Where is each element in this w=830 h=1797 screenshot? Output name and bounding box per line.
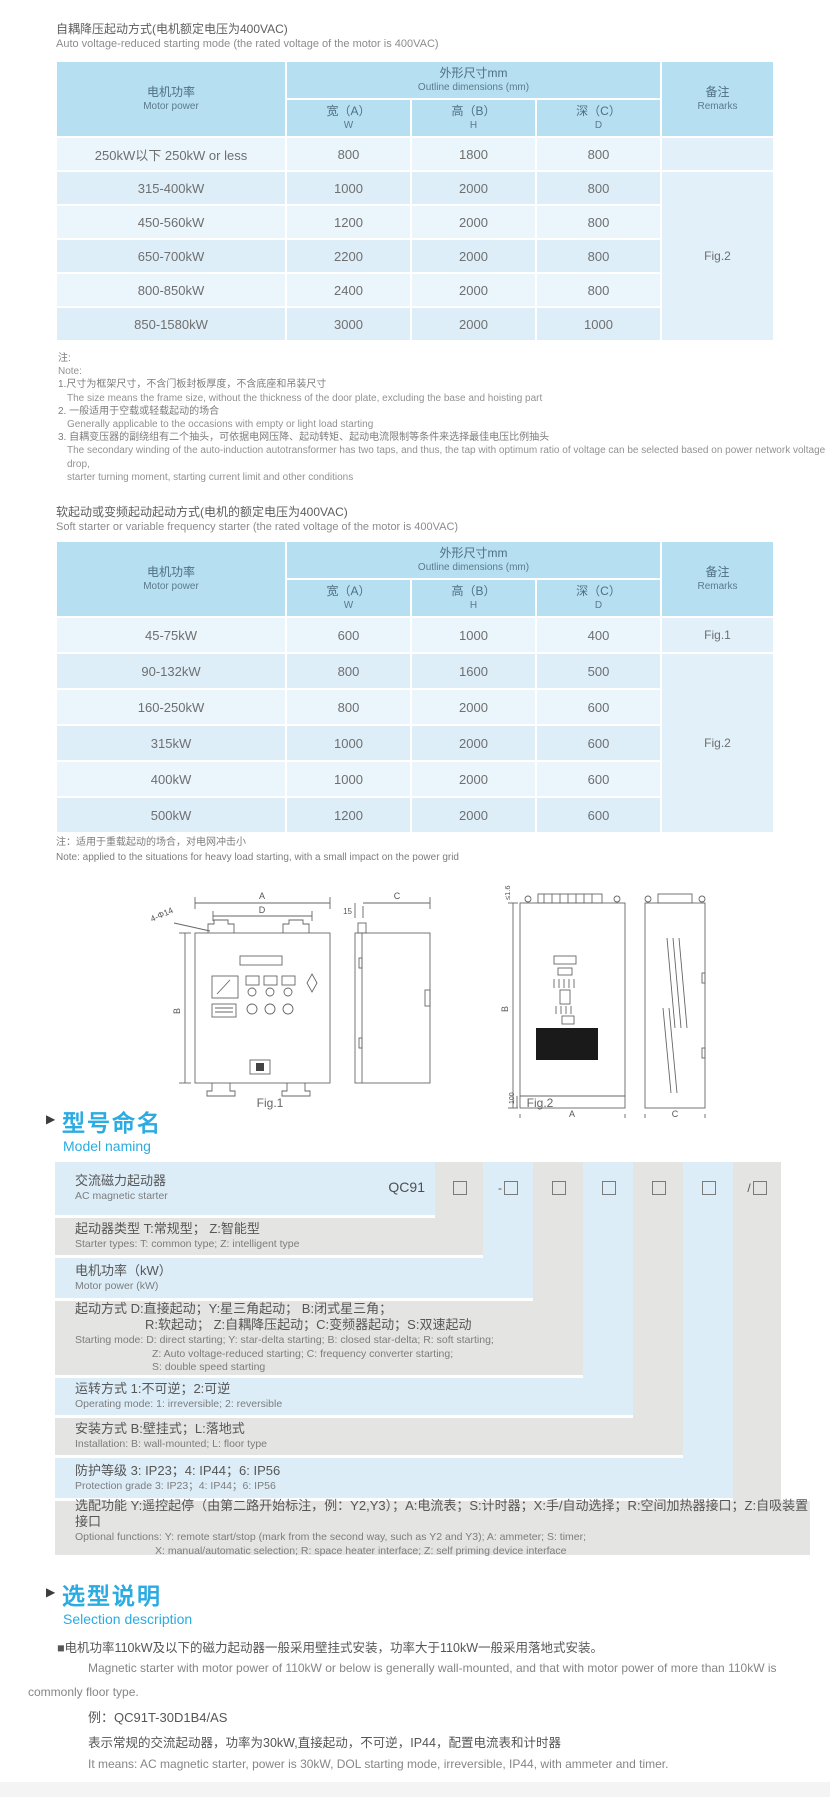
code-box-3 [533,1178,583,1198]
col-depth: 深（C）D [536,99,661,137]
cell-power: 450-560kW [56,205,286,239]
row-label-cn: 起动方式 D:直接起动；Y:星三角起动； B:闭式星三角； [55,1301,583,1317]
header-label: 高（B） [412,104,535,119]
cell-d: 800 [536,137,661,171]
fig1-drawing: A D 4-Φ14 B 15 [149,891,430,1096]
header-label-en: H [412,119,535,132]
col-motor-power: 电机功率Motor power [56,541,286,617]
cell-h: 1600 [411,653,536,689]
row-label-cn: 起动器类型 T:常规型； Z:智能型 [55,1221,483,1237]
cell-h: 2000 [411,797,536,833]
section2-title-cn: 软起动或变频起动起动方式(电机的额定电压为400VAC) [56,503,348,520]
col-height: 高（B）H [411,99,536,137]
cell-power: 315-400kW [56,171,286,205]
cell-w: 1000 [286,761,411,797]
dim-label-a: A [259,891,265,901]
cell-power: 45-75kW [56,617,286,653]
cell-remark-empty [661,137,774,171]
row-label-cn: 安装方式 B:壁挂式；L:落地式 [55,1421,683,1437]
header-label: 宽（A） [287,104,410,119]
row-label-en: S: double speed starting [55,1361,583,1375]
note-line: Generally applicable to the occasions wi… [58,418,830,431]
outline-drawings: A D 4-Φ14 B 15 [100,878,730,1118]
col-remarks: 备注Remarks [661,541,774,617]
soft-starter-table: 电机功率Motor power 外形尺寸mmOutline dimensions… [55,540,775,834]
cell-h: 2000 [411,689,536,725]
fig2-caption: Fig.2 [495,1096,585,1110]
selection-heading-en: Selection description [63,1611,192,1627]
row-label-en: Starting mode: D: direct starting; Y: st… [55,1334,583,1348]
dim-label-c2: C [672,1109,679,1118]
cell-h: 1800 [411,137,536,171]
table-header-row: 电机功率Motor power 外形尺寸mmOutline dimensions… [56,541,774,579]
header-label-en: Motor power [57,580,285,593]
selection-p1-en2: commonly floor type. [28,1685,139,1699]
code-box-icon [552,1181,566,1195]
table2-note-en: Note: applied to the situations for heav… [56,851,459,865]
note-line: 1.尺寸为框架尺寸，不含门板封板厚度，不含底座和吊装尺寸 [58,378,830,391]
row-label-en: Optional functions: Y: remote start/stop… [55,1531,810,1545]
dim-label-b: B [172,1008,182,1014]
header-label: 电机功率 [57,85,285,100]
code-box-2: - [483,1178,533,1198]
header-label-en: W [287,599,410,612]
note-line: The secondary winding of the auto-induct… [58,444,830,470]
table-header-row: 电机功率Motor power 外形尺寸mmOutline dimensions… [56,61,774,99]
header-label: 高（B） [412,584,535,599]
section-marker-icon: ▶ [46,1112,55,1126]
header-label: 外形尺寸mm [287,546,660,561]
model-prefix: QC91 [373,1179,425,1195]
model-row-motor-power: 电机功率（kW） Motor power (kW) [55,1258,533,1298]
cell-w: 600 [286,617,411,653]
note-line: Note: [58,365,830,378]
cell-d: 600 [536,797,661,833]
row-label-cn: 选配功能 Y:遥控起停（由第二路开始标注，例：Y2,Y3）；A:电流表；S:计时… [55,1498,810,1530]
header-label-en: Motor power [57,100,285,113]
code-box-icon [753,1181,767,1195]
cell-remark-fig2: Fig.2 [661,171,774,341]
code-box-icon [602,1181,616,1195]
selection-p1-cn: ■电机功率110kW及以下的磁力起动器一般采用壁挂式安装，功率大于110kW一般… [57,1637,603,1656]
cell-power: 250kW以下 250kW or less [56,137,286,171]
cell-h: 1000 [411,617,536,653]
cell-remark-fig2: Fig.2 [661,653,774,833]
row-label-en: Starter types: T: common type; Z: intell… [55,1238,483,1252]
cell-d: 600 [536,689,661,725]
cell-w: 2200 [286,239,411,273]
cell-h: 2000 [411,205,536,239]
row-label-cn: 防护等级 3: IP23；4: IP44；6: IP56 [55,1463,733,1479]
cell-power: 160-250kW [56,689,286,725]
code-box-icon [504,1181,518,1195]
code-strip-6 [683,1162,733,1498]
col-height: 高（B）H [411,579,536,617]
cell-d: 800 [536,205,661,239]
row-label-en: Protection grade 3: IP23；4: IP44；6: IP56 [55,1480,733,1494]
model-row-operating-mode: 运转方式 1:不可逆；2:可逆 Operating mode: 1: irrev… [55,1378,633,1415]
note-line: 3. 自耦变压器的副绕组有二个抽头，可依据电网压降、起动转矩、起动电流限制等条件… [58,431,830,444]
selection-example: 例：QC91T-30D1B4/AS [88,1707,227,1726]
header-label-en: Remarks [662,100,773,113]
code-strip-7 [733,1162,781,1555]
fig2-drawing: ≤1.6 B 100 A C [500,885,705,1118]
header-label: 深（C） [537,584,660,599]
header-label: 电机功率 [57,565,285,580]
cell-h: 2000 [411,307,536,341]
cell-d: 600 [536,725,661,761]
box-prefix: - [498,1181,502,1195]
col-width: 宽（A）W [286,99,411,137]
row-label-en: Motor power (kW) [55,1280,533,1294]
cell-w: 1000 [286,725,411,761]
header-label: 深（C） [537,104,660,119]
cell-power: 315kW [56,725,286,761]
dim-label-le16: ≤1.6 [503,885,512,900]
row-label-cn: 电机功率（kW） [55,1263,533,1279]
code-box-5 [633,1178,683,1198]
model-row-starter-type: 起动器类型 T:常规型； Z:智能型 Starter types: T: com… [55,1218,483,1255]
model-naming-heading-cn: 型号命名 [62,1104,162,1138]
model-naming-heading-en: Model naming [63,1138,151,1154]
row-label-en: Installation: B: wall-mounted; L: floor … [55,1438,683,1452]
note-line: 2. 一般适用于空载或轻载起动的场合 [58,405,830,418]
cell-h: 2000 [411,171,536,205]
box-prefix: / [747,1181,750,1195]
selection-p2-cn: 表示常规的交流起动器，功率为30kW,直接起动，不可逆，IP44，配置电流表和计… [88,1732,561,1751]
code-box-icon [453,1181,467,1195]
cell-d: 400 [536,617,661,653]
code-box-7: / [733,1178,781,1198]
cell-remark-fig1: Fig.1 [661,617,774,653]
dim-label-holes: 4-Φ14 [149,905,175,924]
cell-h: 2000 [411,725,536,761]
table1-notes: 注: Note: 1.尺寸为框架尺寸，不含门板封板厚度，不含底座和吊装尺寸 Th… [58,352,830,484]
table-row: 315-400kW10002000800Fig.2 [56,171,774,205]
header-label-en: Outline dimensions (mm) [287,81,660,94]
model-naming-table: 交流磁力起动器 AC magnetic starter 起动器类型 T:常规型；… [55,1162,810,1555]
header-label: 外形尺寸mm [287,66,660,81]
table-row: 90-132kW8001600500Fig.2 [56,653,774,689]
section1-title-cn: 自耦降压起动方式(电机额定电压为400VAC) [56,20,288,37]
selection-heading-cn: 选型说明 [62,1577,162,1611]
col-depth: 深（C）D [536,579,661,617]
col-motor-power: 电机功率Motor power [56,61,286,137]
cell-d: 800 [536,273,661,307]
cell-w: 1200 [286,797,411,833]
row-label-en: Z: Auto voltage-reduced starting; C: fre… [55,1348,583,1362]
model-row-starting-mode: 起动方式 D:直接起动；Y:星三角起动； B:闭式星三角； R:软起动； Z:自… [55,1301,583,1375]
cell-power: 800-850kW [56,273,286,307]
cell-w: 800 [286,653,411,689]
dim-label-d: D [259,905,266,915]
header-label-en: D [537,119,660,132]
cell-w: 3000 [286,307,411,341]
cell-w: 800 [286,689,411,725]
section-marker-icon: ▶ [46,1585,55,1599]
code-strip-5 [633,1162,683,1455]
cell-power: 650-700kW [56,239,286,273]
row-label-en: Operating mode: 1: irreversible; 2: reve… [55,1398,633,1412]
cell-d: 800 [536,171,661,205]
selection-p2-en: It means: AC magnetic starter, power is … [88,1757,668,1771]
header-label-en: H [412,599,535,612]
dim-label-a2: A [569,1109,575,1118]
model-row-protection-grade: 防护等级 3: IP23；4: IP44；6: IP56 Protection … [55,1458,733,1498]
note-line: 注: [58,352,830,365]
section2-title-en: Soft starter or variable frequency start… [56,521,458,533]
header-label-en: D [537,599,660,612]
page-bottom-band [0,1782,830,1797]
cell-d: 800 [536,239,661,273]
cell-h: 2000 [411,239,536,273]
header-label: 备注 [662,565,773,580]
code-box-6 [683,1178,733,1198]
section1-title-en: Auto voltage-reduced starting mode (the … [56,38,439,50]
cell-w: 800 [286,137,411,171]
row-label-cn: 运转方式 1:不可逆；2:可逆 [55,1381,633,1397]
header-label-en: Outline dimensions (mm) [287,561,660,574]
col-outline-dims: 外形尺寸mmOutline dimensions (mm) [286,61,661,99]
selection-p1-en1: Magnetic starter with motor power of 110… [88,1661,777,1675]
auto-voltage-table: 电机功率Motor power 外形尺寸mmOutline dimensions… [55,60,775,342]
cell-power: 500kW [56,797,286,833]
row-label-cn: R:软起动； Z:自耦降压起动；C:变频器起动；S:双速起动 [55,1317,583,1333]
note-line: starter turning moment, starting current… [58,471,830,484]
cell-w: 1200 [286,205,411,239]
cell-d: 500 [536,653,661,689]
cell-power: 850-1580kW [56,307,286,341]
header-label-en: W [287,119,410,132]
fig1-caption: Fig.1 [225,1096,315,1110]
cell-w: 1000 [286,171,411,205]
model-row-installation: 安装方式 B:壁挂式；L:落地式 Installation: B: wall-m… [55,1418,683,1455]
dim-label-15: 15 [343,907,352,916]
dim-label-c: C [394,891,401,901]
note-line: The size means the frame size, without t… [58,392,830,405]
cell-d: 1000 [536,307,661,341]
cell-d: 600 [536,761,661,797]
col-remarks: 备注Remarks [661,61,774,137]
cell-h: 2000 [411,273,536,307]
col-outline-dims: 外形尺寸mmOutline dimensions (mm) [286,541,661,579]
row-label-en: X: manual/automatic selection; R: space … [55,1545,810,1559]
table-row: 45-75kW6001000400Fig.1 [56,617,774,653]
cell-power: 400kW [56,761,286,797]
code-box-1 [435,1178,483,1198]
cell-h: 2000 [411,761,536,797]
code-box-icon [652,1181,666,1195]
header-label-en: Remarks [662,580,773,593]
catalog-page: 自耦降压起动方式(电机额定电压为400VAC) Auto voltage-red… [0,0,830,1797]
header-label: 备注 [662,85,773,100]
header-label: 宽（A） [287,584,410,599]
col-width: 宽（A）W [286,579,411,617]
code-box-icon [702,1181,716,1195]
code-box-4 [583,1178,633,1198]
cell-power: 90-132kW [56,653,286,689]
dim-label-b2: B [500,1006,510,1012]
cell-w: 2400 [286,273,411,307]
model-row-optional-functions: 选配功能 Y:遥控起停（由第二路开始标注，例：Y2,Y3）；A:电流表；S:计时… [55,1501,810,1555]
table-row: 250kW以下 250kW or less8001800800 [56,137,774,171]
table2-note-cn: 注：适用于重载起动的场合，对电网冲击小 [56,836,246,850]
